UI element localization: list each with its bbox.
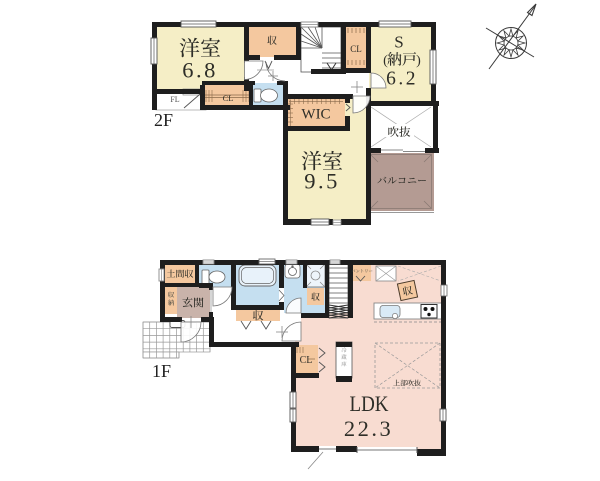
svg-text:WIC: WIC (301, 107, 330, 123)
svg-text:S: S (394, 33, 403, 52)
svg-text:6.8: 6.8 (182, 58, 218, 83)
svg-text:1F: 1F (152, 361, 171, 381)
svg-text:6.2: 6.2 (386, 69, 418, 90)
svg-text:2F: 2F (154, 110, 173, 130)
svg-text:22.3: 22.3 (344, 416, 393, 441)
svg-text:CL: CL (223, 93, 234, 103)
svg-text:9.5: 9.5 (304, 169, 340, 194)
svg-text:CL: CL (300, 355, 313, 366)
svg-text:CL: CL (350, 44, 362, 54)
svg-text:FL: FL (170, 95, 179, 104)
svg-text:LDK: LDK (350, 391, 390, 416)
svg-text:): ) (416, 54, 421, 69)
svg-text:(: ( (383, 54, 388, 69)
